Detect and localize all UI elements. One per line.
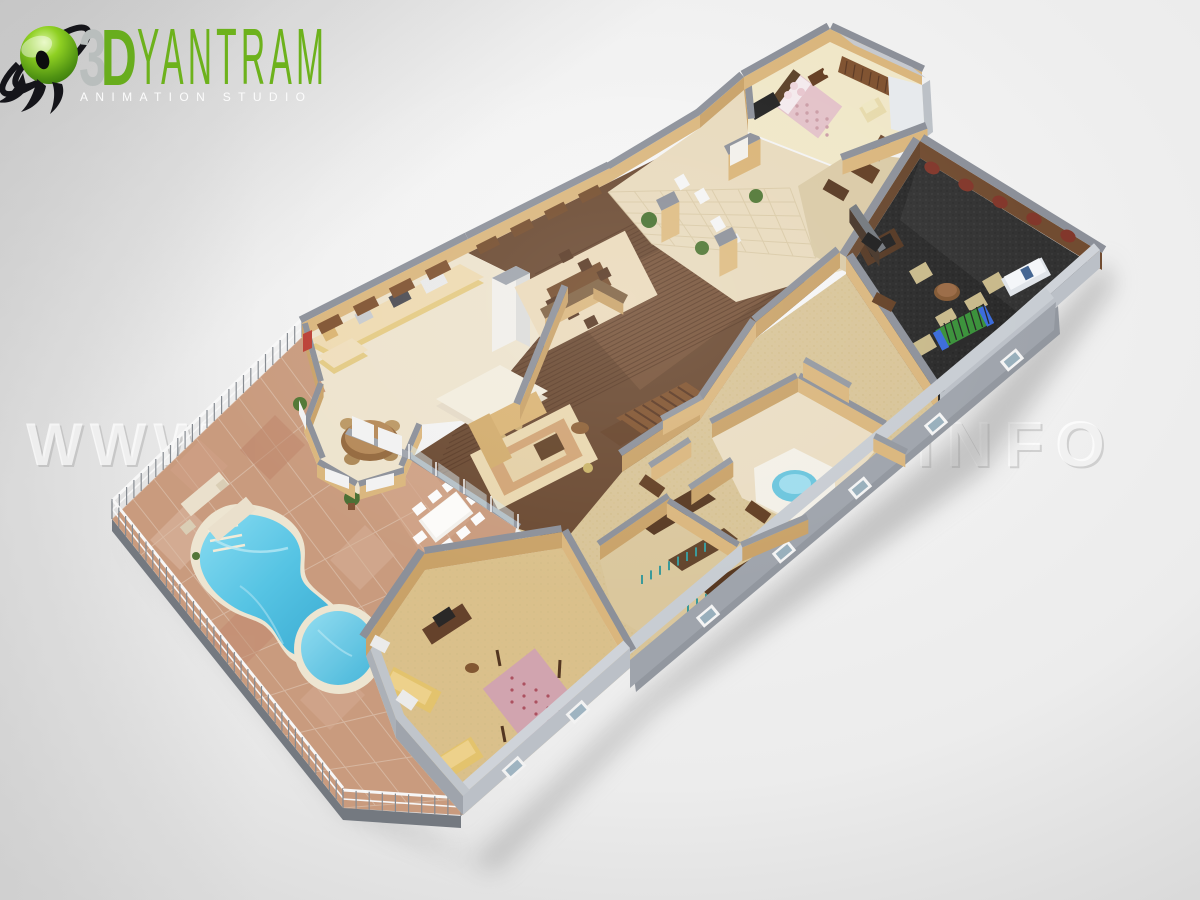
svg-text:YANTRAM: YANTRAM	[137, 12, 328, 102]
